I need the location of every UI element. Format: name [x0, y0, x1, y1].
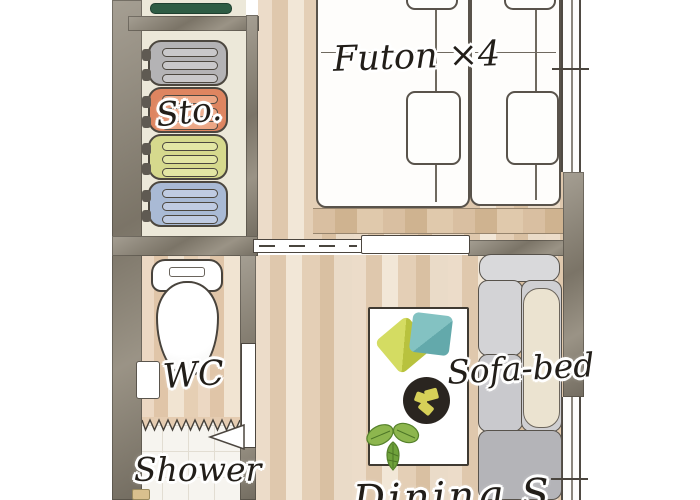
suitcase-blue: [148, 181, 228, 227]
suitcase-ridge: [162, 168, 218, 177]
suitcase-ridge: [162, 215, 218, 224]
suitcase-gray: [148, 40, 228, 86]
suitcase-ridge: [162, 74, 218, 83]
label-storage: Sto.: [154, 92, 223, 132]
suitcase-ridge: [162, 189, 218, 198]
window-top-right: [561, 0, 581, 172]
green-shelf: [150, 3, 232, 14]
sliding-door-panel: [361, 235, 470, 254]
pillow: [406, 91, 461, 165]
suitcase-ridge: [162, 61, 218, 70]
seat-cushion-teal: [409, 312, 454, 357]
suitcase-ridge: [162, 202, 218, 211]
toilet-tank-lid: [169, 267, 205, 277]
suitcase-wheel: [142, 210, 151, 222]
sliding-door-track: [253, 239, 363, 253]
toiletries: [132, 489, 150, 500]
food: [417, 400, 434, 417]
suitcase-wheel: [142, 163, 151, 175]
wc-door-fixture: [136, 361, 160, 399]
food: [424, 388, 439, 402]
suitcase-stack: [140, 40, 236, 232]
plant-icon: [363, 418, 425, 472]
suitcase-green: [148, 134, 228, 180]
dimension-tick: [551, 478, 588, 480]
wall-top: [128, 16, 259, 31]
label-dining: Dining S: [352, 474, 552, 500]
sofa-back: [479, 254, 560, 282]
suitcase-ridge: [162, 142, 218, 151]
door-swing-marker: [207, 424, 245, 450]
label-sofa-bed: Sofa-bed: [446, 348, 595, 389]
window-bottom-right: [561, 397, 581, 500]
suitcase-wheel: [142, 69, 151, 81]
food-plate: [403, 377, 450, 424]
suitcase-ridge: [162, 48, 218, 57]
suitcase-wheel: [142, 96, 151, 108]
pillow: [504, 0, 556, 10]
sofa-section: [478, 280, 523, 356]
suitcase-wheel: [142, 143, 151, 155]
suitcase-wheel: [142, 49, 151, 61]
label-shower: Shower: [134, 453, 261, 486]
suitcase-ridge: [162, 155, 218, 164]
label-futon: Futon ×4: [332, 37, 500, 78]
bedroom-floor-band: [313, 208, 563, 234]
pillow: [406, 0, 458, 10]
label-wc: WC: [162, 356, 225, 394]
wall-storage-right: [246, 15, 258, 240]
dimension-tick: [552, 68, 589, 70]
floor-plan: Futon ×4 Sto. WC Shower Sofa-bed Dining …: [0, 0, 700, 500]
sliding-door-rail: [259, 245, 357, 247]
pillow: [506, 91, 559, 165]
suitcase-wheel: [142, 190, 151, 202]
suitcase-wheel: [142, 116, 151, 128]
wall-middle-left: [112, 236, 258, 256]
